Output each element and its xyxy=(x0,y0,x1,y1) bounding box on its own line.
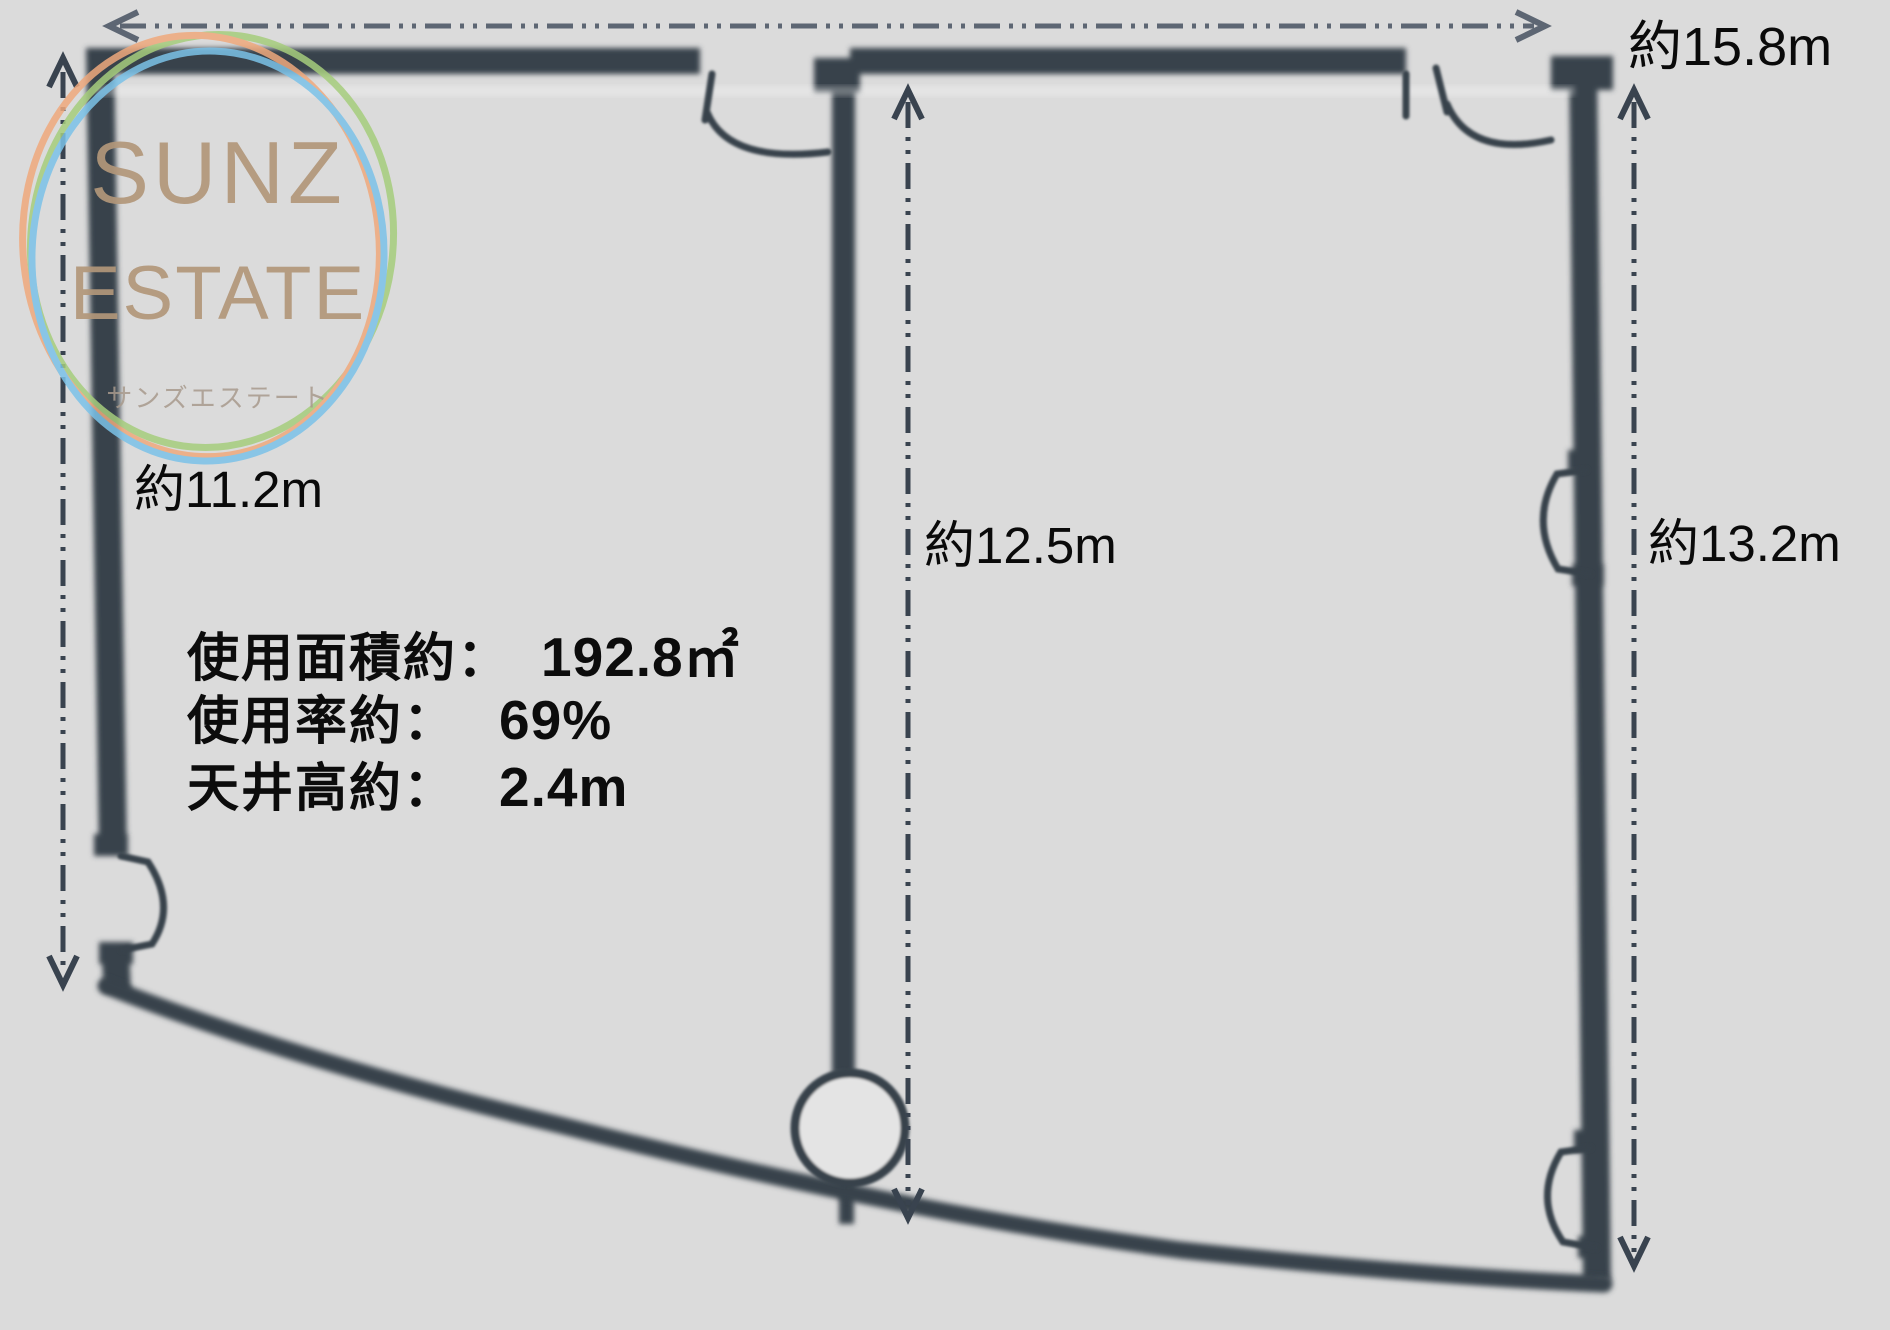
logo-title-line1: SUNZ xyxy=(18,122,418,224)
logo-title-line2: ESTATE xyxy=(18,250,418,337)
spec-ceiling-value: 2.4m xyxy=(499,755,628,819)
floorplan-page: SUNZ ESTATE サンズエステート 約15.8m 約11.2m 約12.5… xyxy=(0,0,1890,1330)
spec-ratio-value: 69% xyxy=(499,688,612,752)
dimension-label-center: 約12.5m xyxy=(924,504,1117,578)
spec-row-ceiling: 天井高約： 2.4m xyxy=(187,746,740,813)
spec-ceiling-label: 天井高約： xyxy=(187,746,457,821)
logo-subtitle: サンズエステート xyxy=(18,378,418,415)
dimension-arrow-center xyxy=(894,90,922,1218)
center-wall xyxy=(832,60,855,1074)
spec-row-area: 使用面積約： 192.8㎡ xyxy=(187,612,740,679)
dimension-arrow-right xyxy=(1620,90,1648,1266)
left-door-arc xyxy=(121,856,164,950)
spec-area-value: 192.8㎡ xyxy=(541,612,740,692)
top-center-door-arc xyxy=(707,112,828,154)
dimension-label-left: 約11.2m xyxy=(134,448,323,522)
arrowhead-down-icon xyxy=(49,956,77,985)
specs-block: 使用面積約： 192.8㎡ 使用率約： 69% 天井高約： 2.4m xyxy=(187,612,740,813)
watermark-logo: SUNZ ESTATE サンズエステート xyxy=(18,26,418,486)
column-circle xyxy=(795,1073,905,1183)
top-right-door-arc xyxy=(1447,104,1551,145)
right-wall xyxy=(1569,62,1611,1280)
dimension-label-top: 約15.8m xyxy=(1628,2,1832,81)
top-wall-middle-segment xyxy=(850,48,1406,74)
left-door-jamb-top xyxy=(94,834,128,856)
spec-ratio-label: 使用率約： xyxy=(187,679,457,754)
dimension-label-right: 約13.2m xyxy=(1648,502,1841,576)
